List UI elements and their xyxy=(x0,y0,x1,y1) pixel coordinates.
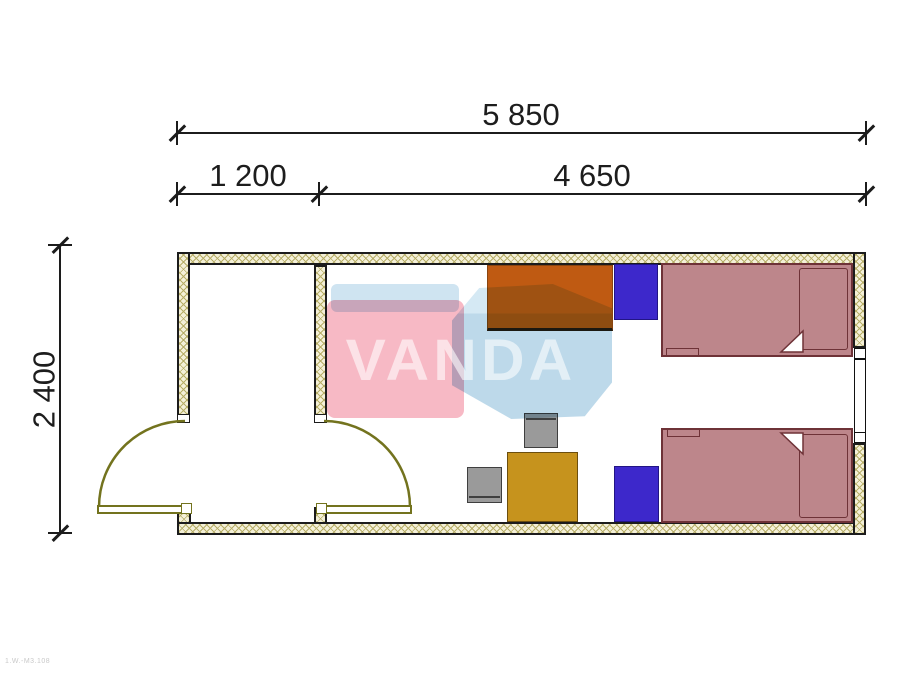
door-arc-entrance xyxy=(99,421,185,507)
wall-right-lower xyxy=(853,443,866,535)
wall-left xyxy=(177,252,190,423)
dim-overall-line xyxy=(177,132,866,134)
floor-plan-canvas: 5 850 1 200 4 650 2 400 xyxy=(0,0,924,700)
wall-right-upper xyxy=(853,252,866,348)
dim-overall-label: 5 850 xyxy=(431,99,611,130)
wall-cap-partition xyxy=(314,414,327,423)
wall-cap-left xyxy=(177,414,190,423)
bed-bottom-pillow xyxy=(799,434,848,518)
window-mullion xyxy=(855,358,865,360)
dim-room-label: 4 650 xyxy=(502,160,682,191)
door-hinge-interior xyxy=(316,503,327,514)
window-mullion xyxy=(855,432,865,434)
nightstand-top xyxy=(614,264,658,320)
dim-depth-label: 2 400 xyxy=(29,300,60,480)
door-leaf-interior xyxy=(323,505,412,514)
dim-depth-line xyxy=(59,245,61,533)
watermark-text: VANDA xyxy=(325,326,597,396)
chair-backrest xyxy=(469,496,500,498)
door-hinge-entrance xyxy=(181,503,192,514)
bed-bottom-notch xyxy=(667,429,700,437)
bed-top-notch xyxy=(666,348,699,356)
chair-left xyxy=(467,467,502,503)
wall-bottom xyxy=(177,522,866,535)
table xyxy=(507,452,578,522)
bed-top-pillow xyxy=(799,268,848,350)
door-arc-interior xyxy=(324,421,410,507)
door-leaf-entrance xyxy=(97,505,186,514)
nightstand-bottom xyxy=(614,466,659,522)
chair-backrest xyxy=(526,418,556,420)
dim-sub-line xyxy=(177,193,866,195)
window xyxy=(854,348,866,443)
drawing-code: 1.W.-M3.108 xyxy=(5,658,50,665)
